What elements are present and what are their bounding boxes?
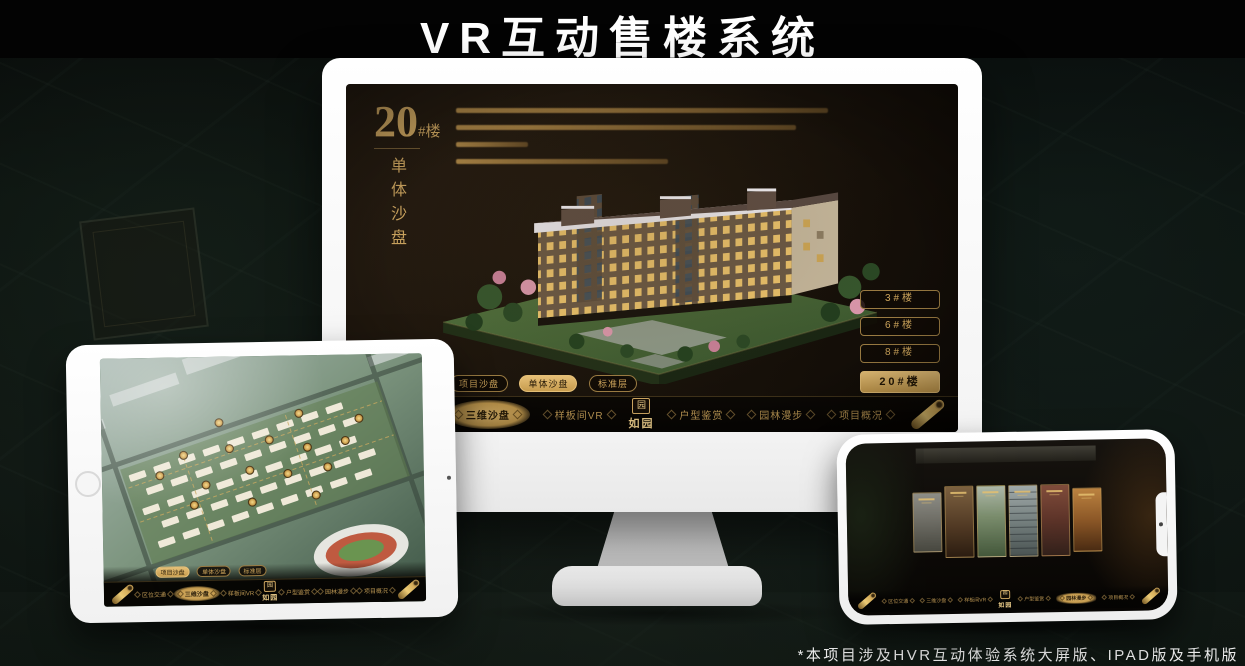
brand-logo[interactable]: 园 如园 [628, 398, 654, 431]
pano-panel-courtyard[interactable] [912, 492, 942, 552]
stage: VR互动售楼系统 20#楼 单体沙盘 [0, 0, 1245, 666]
nav-item-unit-plans[interactable]: 户型鉴赏 [1018, 595, 1050, 603]
monitor-stand-neck [596, 510, 730, 572]
floor-button-20[interactable]: 20#楼 [860, 371, 940, 393]
phone-camera-dot [1159, 522, 1163, 526]
nav-item-unit-plans[interactable]: 户型鉴赏 [668, 407, 734, 422]
tablet-navbar: 区位交通 三维沙盘 样板间VR 园 如园 户型鉴赏 园林漫步 项目概况 [104, 576, 426, 607]
building-number-suffix: #楼 [418, 124, 441, 140]
nav-item-project-overview[interactable]: 项目概况 [357, 585, 395, 595]
building-end-facade [792, 200, 838, 295]
nav-item-unit-plans[interactable]: 户型鉴赏 [279, 587, 317, 597]
scroll-menu-icon[interactable] [396, 579, 419, 600]
mode-button-single[interactable]: 单体沙盘 [197, 566, 231, 578]
tablet-camera-dot [447, 476, 451, 480]
brand-seal-icon: 园 [632, 398, 650, 414]
brand-logo[interactable]: 园 如园 [262, 581, 278, 603]
nav-item-showroom-vr[interactable]: 样板间VR [958, 596, 992, 604]
panorama-gallery [846, 478, 1167, 564]
nav-item-project-overview[interactable]: 项目概况 [828, 407, 894, 422]
nav-item-location[interactable]: 区位交通 [135, 589, 173, 599]
footnote: *本项目涉及HVR互动体验系统大屏版、IPAD版及手机版 [798, 644, 1239, 665]
mode-button-floorplate[interactable]: 标准层 [238, 565, 266, 576]
phone-screen: 区位交通 三维沙盘 样板间VR 园 如园 户型鉴赏 园林漫步 项目概况 [846, 438, 1169, 616]
brand-seal-icon: 园 [264, 581, 276, 592]
nav-item-location[interactable]: 区位交通 [882, 597, 914, 605]
pano-panel-facade[interactable] [1008, 484, 1038, 556]
pano-panel-livingroom[interactable] [944, 486, 974, 558]
scroll-menu-icon[interactable] [909, 398, 945, 430]
tablet-mode-switch: 项目沙盘 单体沙盘 标准层 [155, 560, 269, 580]
nav-item-garden-walk[interactable]: 园林漫步 [748, 407, 814, 422]
pergola-beam [916, 445, 1095, 463]
home-button[interactable] [75, 471, 101, 497]
background-plaque [79, 207, 209, 340]
building-number: 20 [374, 97, 418, 146]
headline-subtitle: 单体沙盘 [384, 157, 408, 267]
pano-panel-entrance[interactable] [1040, 484, 1070, 556]
mode-button-floorplate[interactable]: 标准层 [589, 375, 637, 392]
floor-button-6[interactable]: 6#楼 [860, 317, 940, 336]
building-3d-model[interactable] [428, 142, 890, 384]
nav-item-sandtable[interactable]: 三维沙盘 [174, 585, 220, 601]
nav-item-garden-walk[interactable]: 园林漫步 [1056, 592, 1096, 604]
sandtable-mode-switch: 项目沙盘 单体沙盘 标准层 [450, 374, 644, 392]
tablet-device: 项目沙盘 单体沙盘 标准层 区位交通 三维沙盘 样板间VR 园 如园 户型鉴赏 … [66, 339, 459, 624]
headline-rule [374, 148, 420, 149]
brand-logo[interactable]: 园 如园 [998, 589, 1012, 608]
nav-item-showroom-vr[interactable]: 样板间VR [221, 588, 261, 598]
floor-button-8[interactable]: 8#楼 [860, 344, 940, 363]
mode-button-single[interactable]: 单体沙盘 [519, 375, 577, 392]
floor-button-3[interactable]: 3#楼 [860, 290, 940, 309]
phone-device: 区位交通 三维沙盘 样板间VR 园 如园 户型鉴赏 园林漫步 项目概况 [836, 429, 1177, 625]
phone-notch [1155, 492, 1167, 556]
mode-button-project[interactable]: 项目沙盘 [450, 375, 508, 392]
nav-item-sandtable[interactable]: 三维沙盘 [446, 400, 530, 429]
pano-panel-interior[interactable] [1072, 487, 1102, 551]
nav-item-sandtable[interactable]: 三维沙盘 [920, 596, 952, 604]
scroll-menu-icon[interactable] [1141, 588, 1160, 606]
nav-item-showroom-vr[interactable]: 样板间VR [544, 407, 615, 422]
scroll-menu-icon[interactable] [857, 593, 876, 611]
scroll-menu-icon[interactable] [111, 584, 134, 605]
nav-item-garden-walk[interactable]: 园林漫步 [318, 586, 356, 596]
monitor-stand-base [552, 566, 762, 606]
brand-seal-icon: 园 [1000, 589, 1010, 598]
pano-panel-garden[interactable] [976, 485, 1006, 557]
mode-button-project[interactable]: 项目沙盘 [155, 566, 189, 578]
tablet-screen: 项目沙盘 单体沙盘 标准层 区位交通 三维沙盘 样板间VR 园 如园 户型鉴赏 … [100, 353, 426, 607]
floor-selector: 3#楼 6#楼 8#楼 20#楼 [860, 290, 940, 401]
page-title: VR互动售楼系统 [0, 2, 1245, 66]
nav-item-project-overview[interactable]: 项目概况 [1102, 593, 1134, 601]
